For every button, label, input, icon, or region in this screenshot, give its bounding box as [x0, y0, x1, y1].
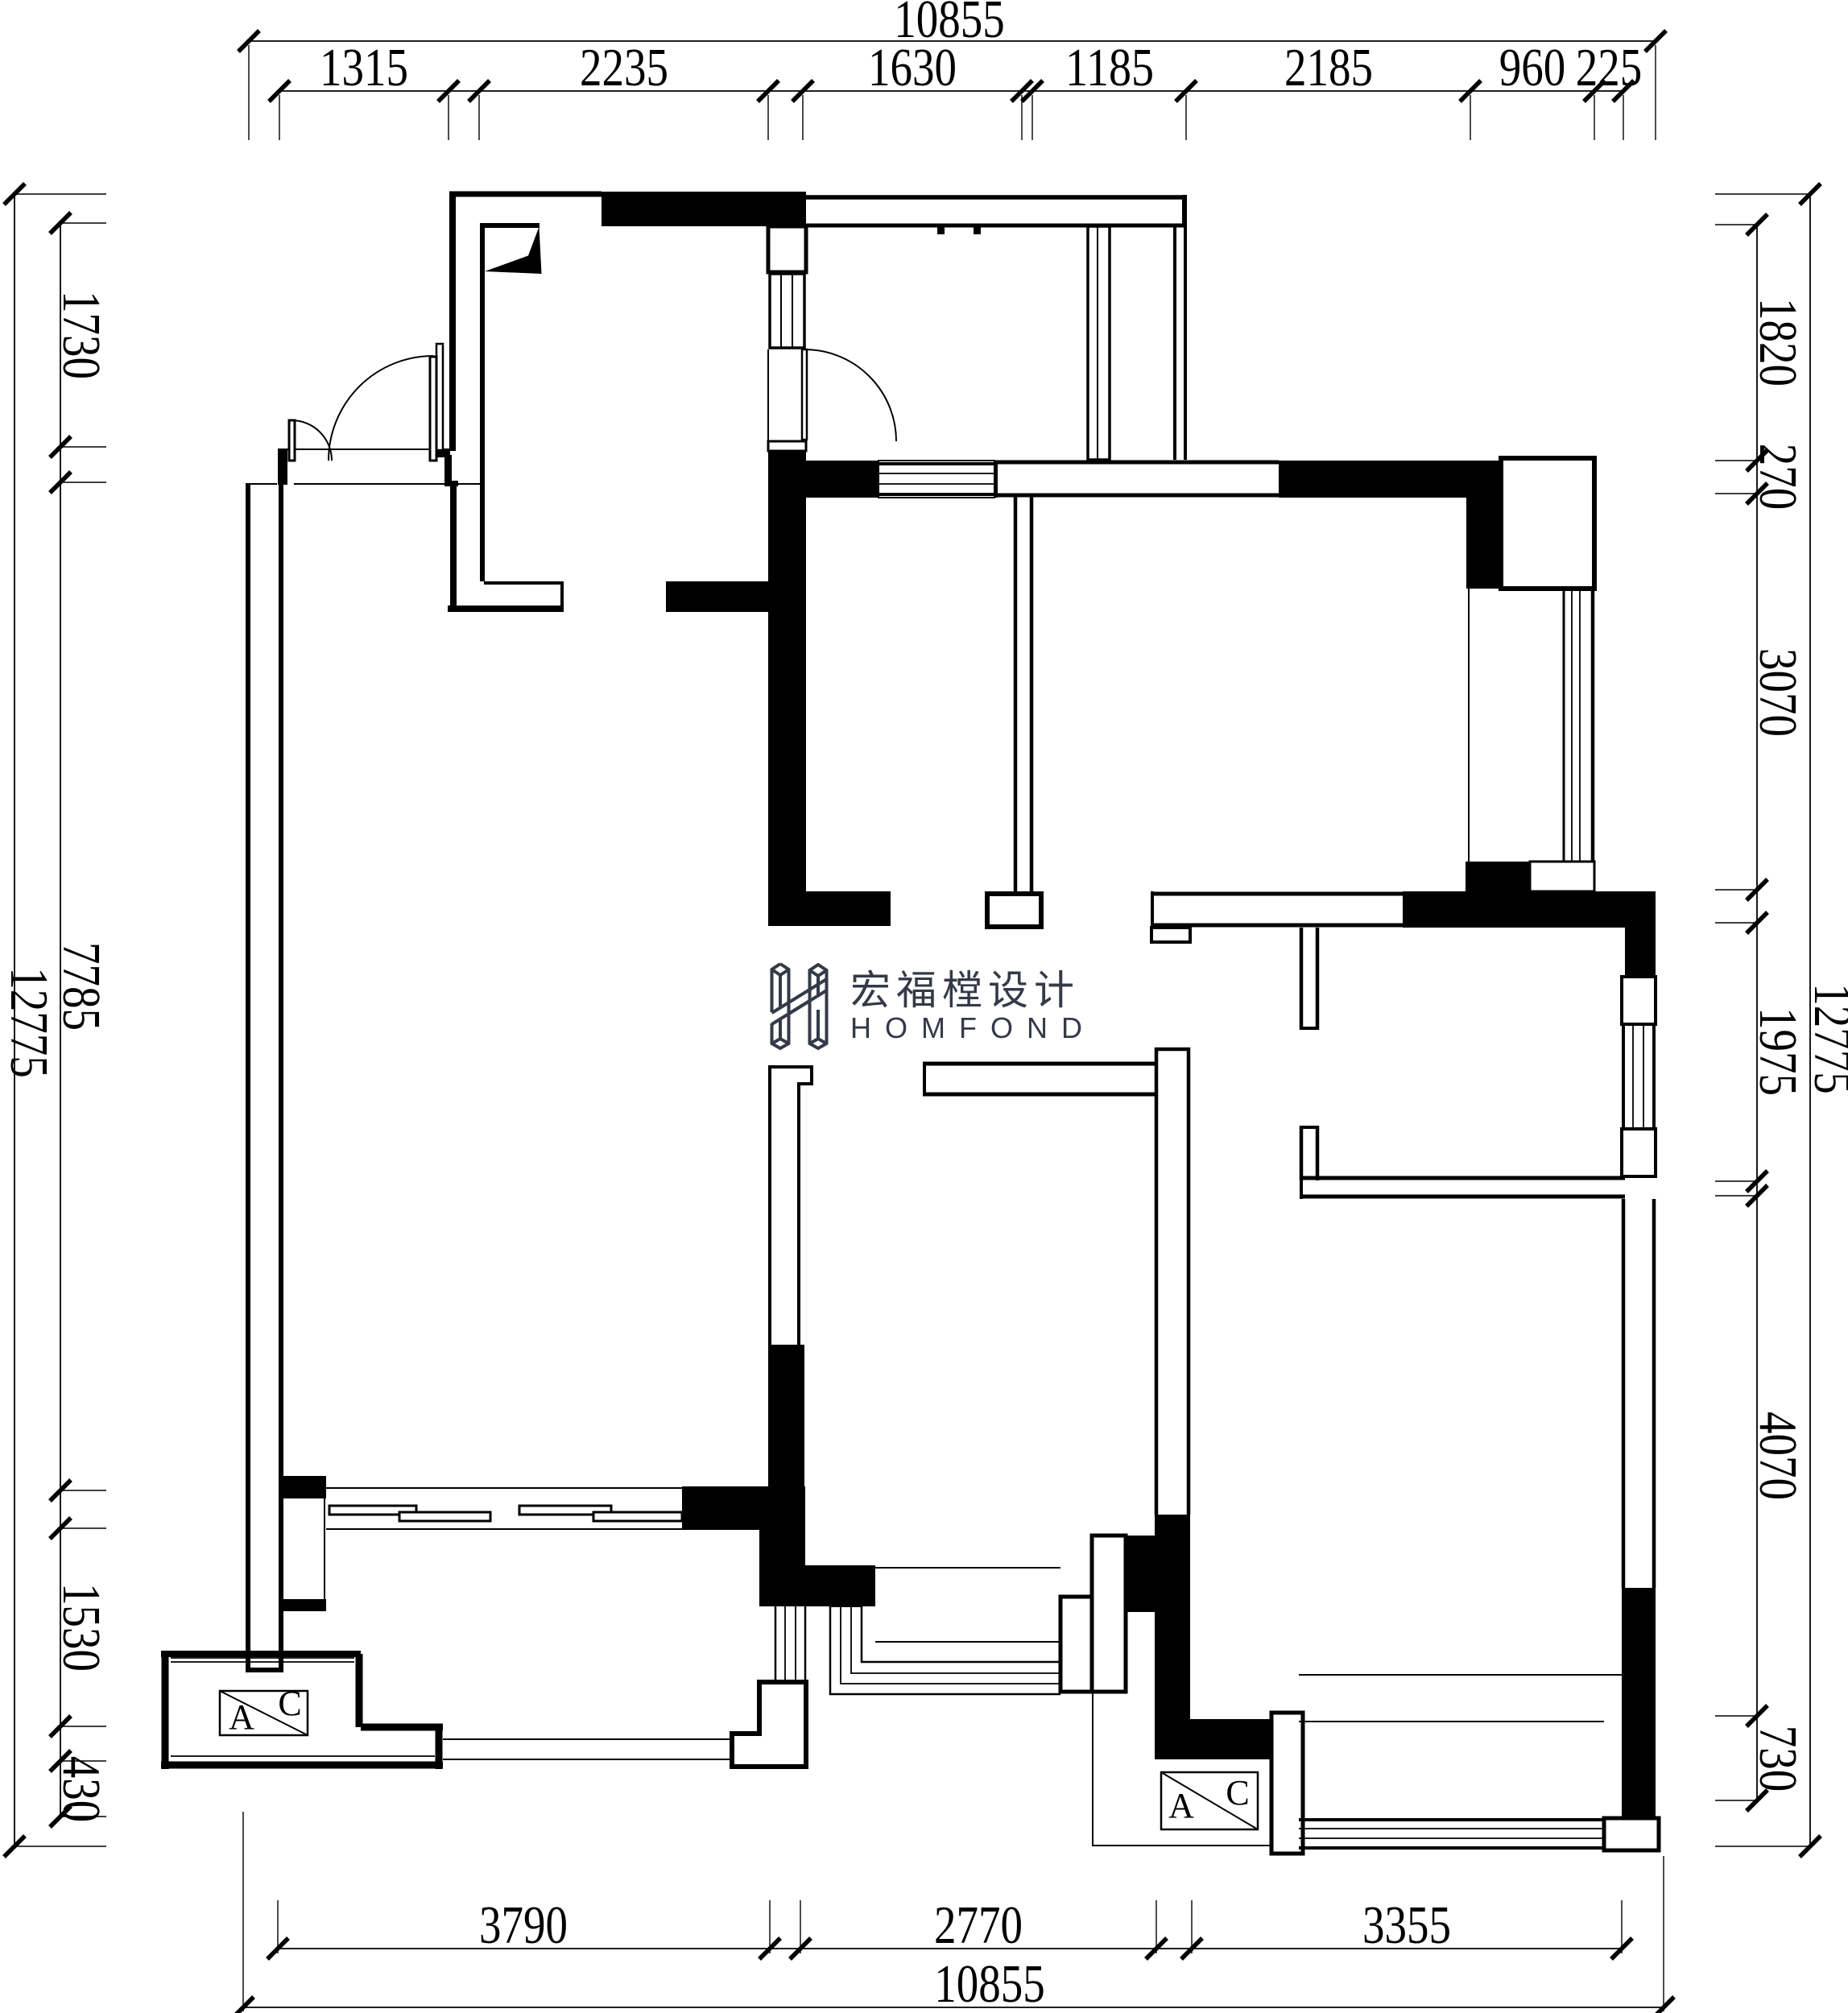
svg-text:C: C: [1226, 1773, 1249, 1813]
svg-text:1730: 1730: [52, 291, 111, 379]
svg-text:270: 270: [1748, 444, 1808, 510]
svg-text:宏福樘设计: 宏福樘设计: [850, 968, 1080, 1013]
svg-text:1315: 1315: [320, 38, 408, 97]
svg-text:1530: 1530: [52, 1583, 111, 1672]
svg-text:C: C: [278, 1684, 301, 1723]
svg-text:12775: 12775: [0, 967, 59, 1078]
svg-text:2235: 2235: [580, 38, 668, 97]
svg-text:3070: 3070: [1748, 648, 1808, 737]
svg-text:4070: 4070: [1748, 1412, 1808, 1500]
svg-text:1820: 1820: [1748, 298, 1808, 386]
svg-text:10855: 10855: [934, 1954, 1045, 2013]
svg-text:225: 225: [1576, 38, 1643, 97]
svg-text:HOMFOND: HOMFOND: [850, 1011, 1096, 1044]
svg-text:3355: 3355: [1362, 1895, 1451, 1955]
svg-text:2185: 2185: [1284, 38, 1373, 97]
svg-text:7785: 7785: [52, 942, 111, 1031]
svg-text:730: 730: [1748, 1726, 1808, 1792]
svg-text:1630: 1630: [868, 38, 957, 97]
svg-text:430: 430: [52, 1756, 111, 1823]
svg-text:12775: 12775: [1803, 983, 1848, 1094]
svg-text:2770: 2770: [934, 1895, 1023, 1955]
svg-text:1185: 1185: [1065, 38, 1154, 97]
svg-text:3790: 3790: [479, 1895, 568, 1955]
svg-text:960: 960: [1499, 38, 1566, 97]
svg-text:1975: 1975: [1748, 1007, 1808, 1096]
svg-text:A: A: [229, 1697, 254, 1737]
svg-text:A: A: [1168, 1786, 1194, 1825]
